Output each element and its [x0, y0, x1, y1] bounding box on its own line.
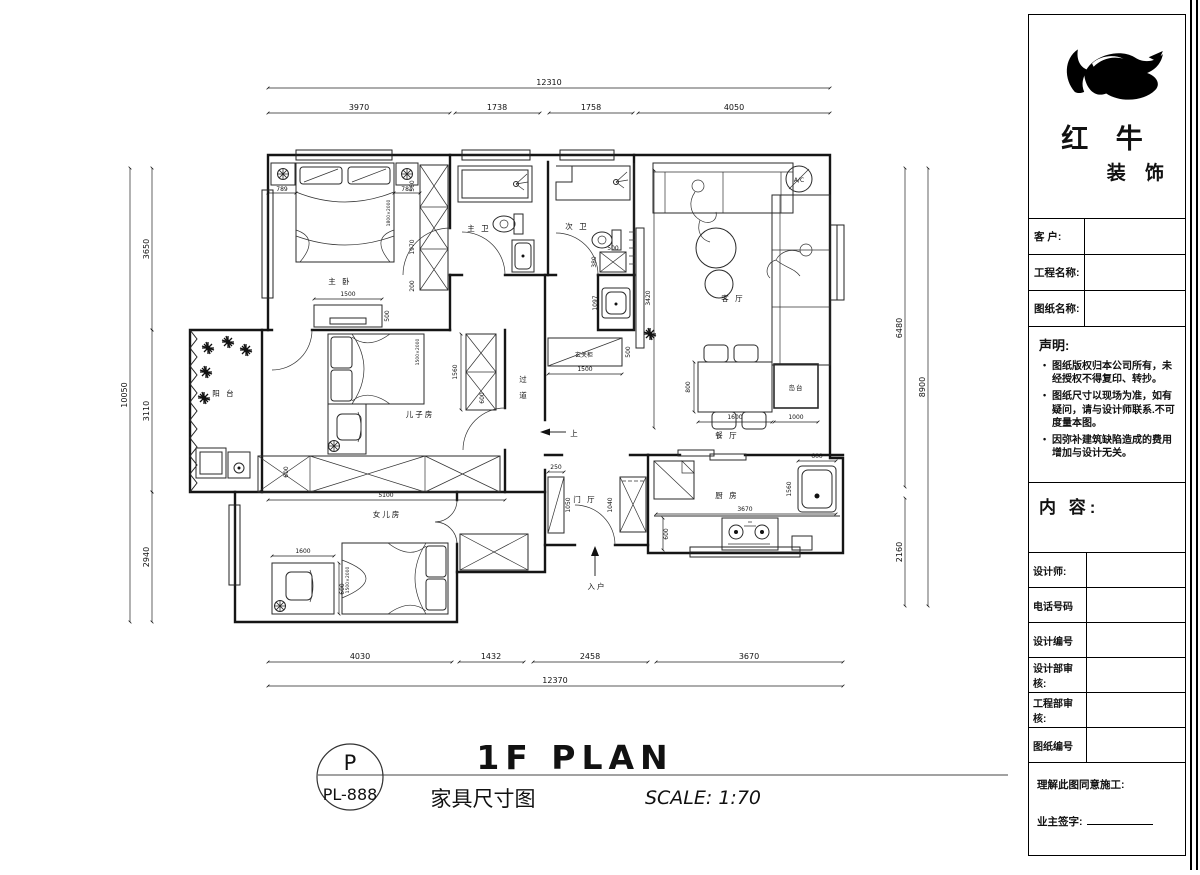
svg-text:1600: 1600: [295, 548, 310, 555]
entry-label: 入户: [588, 581, 607, 591]
svg-text:4050: 4050: [724, 103, 744, 112]
svg-text:1758: 1758: [581, 103, 601, 112]
field-designer: 设计师:: [1029, 553, 1185, 588]
svg-text:800: 800: [685, 381, 692, 393]
sheet-border-line: [1190, 0, 1192, 870]
field-engineering-review: 工程部审核:: [1029, 693, 1185, 728]
field-phone-value: [1087, 588, 1185, 622]
entry-cabinet-label: 玄关柜: [575, 351, 593, 359]
sheet-title: 1F PLAN: [476, 738, 673, 777]
master-bedroom: 1800×2000 主 卧: [271, 163, 448, 327]
statement-item: 图纸尺寸以现场为准，如有疑问，请与设计师联系.不可度量本图。: [1043, 390, 1179, 430]
sheet-title-bar: P PL-888 1F PLAN 家具尺寸图 SCALE: 1:70: [317, 738, 1008, 811]
content-label: 内 容:: [1039, 498, 1099, 517]
ac-symbol: A/C: [786, 166, 812, 192]
tv-unit: [636, 228, 644, 348]
island-label: 岛台: [789, 383, 804, 392]
room-label-master: 主 卧: [328, 276, 351, 286]
lamp-icon: [329, 441, 340, 452]
construction-consent-label: 理解此图同意施工:: [1037, 777, 1177, 792]
svg-text:500: 500: [625, 346, 632, 358]
svg-text:600: 600: [663, 528, 670, 540]
field-designer-value: [1087, 553, 1185, 587]
svg-text:1050: 1050: [565, 497, 572, 512]
svg-text:1432: 1432: [481, 652, 501, 661]
svg-text:600: 600: [283, 466, 290, 478]
plant-icon: [202, 342, 214, 354]
son-bed: [328, 334, 424, 404]
room-label-living: 客 厅: [721, 293, 744, 303]
sheet-border-line: [1196, 0, 1198, 870]
kitchen-sink: [798, 466, 836, 512]
living-room: A/C 客 厅: [634, 163, 830, 365]
field-design-review-value: [1087, 658, 1185, 692]
room-label-foyer: 门 厅: [573, 495, 596, 504]
plant-icon: [240, 344, 252, 356]
sheet-code-top: P: [344, 751, 357, 775]
balcony: 阳 台: [196, 336, 252, 478]
statement-item: 图纸版权归本公司所有，未经授权不得复印、转抄。: [1043, 360, 1179, 386]
svg-text:600: 600: [811, 453, 823, 460]
field-drawing-no-value: [1087, 728, 1185, 762]
svg-text:10050: 10050: [120, 382, 129, 407]
svg-text:1560: 1560: [786, 481, 793, 496]
field-engineering-review-value: [1087, 693, 1185, 727]
person-figure: [767, 244, 812, 278]
svg-text:3420: 3420: [645, 290, 652, 305]
svg-text:380: 380: [591, 256, 598, 268]
field-drawing-no: 图纸编号: [1029, 728, 1185, 763]
sheet-code-bottom: PL-888: [323, 785, 378, 804]
room-label-daughter: 女儿房: [373, 509, 402, 519]
svg-text:12370: 12370: [542, 676, 567, 685]
brand-area: 红 牛 装 饰: [1029, 15, 1185, 219]
svg-text:789: 789: [276, 186, 288, 193]
svg-text:600: 600: [479, 392, 486, 404]
field-customer-value: [1085, 219, 1185, 254]
svg-text:A/C: A/C: [794, 177, 804, 184]
content-box: 内 容:: [1029, 483, 1185, 553]
room-label-dining: 餐 厅: [715, 431, 738, 440]
floor-plan-area: 1800×2000 主 卧 主 卫 次 卫: [0, 0, 1030, 870]
room-label-kitchen: 厨 房: [715, 490, 738, 500]
owner-signature-label: 业主签字:: [1037, 814, 1177, 829]
sofa-side: [772, 195, 830, 365]
svg-text:1000: 1000: [788, 414, 803, 421]
field-drawing-name-value: [1085, 291, 1185, 326]
stove: [722, 518, 778, 550]
second-bath: 次 卫: [556, 166, 635, 272]
field-design-no-value: [1087, 623, 1185, 657]
svg-text:1600: 1600: [727, 414, 742, 421]
field-project-name: 工程名称:: [1029, 255, 1185, 291]
corridor-label: 道: [519, 390, 529, 400]
basin-nook: [602, 288, 630, 318]
foyer: 门 厅 入户: [548, 477, 646, 591]
svg-text:1500: 1500: [577, 366, 592, 373]
svg-text:2160: 2160: [895, 542, 904, 562]
brand-name-2: 装 饰: [1107, 158, 1171, 185]
master-bath: 主 卫: [458, 166, 534, 272]
svg-text:3670: 3670: [739, 652, 759, 661]
field-drawing-name: 图纸名称:: [1029, 291, 1185, 327]
svg-text:3110: 3110: [142, 401, 151, 421]
signature-line: [1087, 814, 1153, 825]
svg-text:500: 500: [384, 310, 391, 322]
statement-list: 图纸版权归本公司所有，未经授权不得复印、转抄。 图纸尺寸以现场为准，如有疑问，请…: [1039, 360, 1179, 460]
lamp-icon: [278, 169, 289, 180]
svg-text:1040: 1040: [607, 497, 614, 512]
floor-plan-svg: 1800×2000 主 卧 主 卫 次 卫: [0, 0, 1030, 870]
up-arrow: 上: [540, 429, 580, 439]
bed-size-label: 1500×2000: [415, 339, 421, 366]
master-bed: [296, 163, 394, 262]
corridor-label: 过: [519, 374, 529, 384]
lamp-icon: [402, 169, 413, 180]
svg-text:3650: 3650: [142, 239, 151, 259]
sheet-scale: SCALE: 1:70: [645, 787, 761, 809]
statement-item: 因弥补建筑缺陷造成的费用增加与设计无关。: [1043, 434, 1179, 460]
svg-text:1097: 1097: [592, 295, 599, 310]
svg-text:1560: 1560: [452, 364, 459, 379]
svg-text:3670: 3670: [737, 506, 752, 513]
title-block: 红 牛 装 饰 客 户: 工程名称: 图纸名称: 声明: 图纸版权归本公司所有，…: [1028, 14, 1186, 856]
svg-text:1970: 1970: [409, 239, 416, 254]
svg-text:上: 上: [570, 429, 580, 438]
bed-size-label: 1800×2000: [386, 200, 392, 227]
svg-text:2940: 2940: [142, 547, 151, 567]
svg-text:12310: 12310: [536, 78, 561, 87]
svg-text:2458: 2458: [580, 652, 600, 661]
svg-text:3970: 3970: [349, 103, 369, 112]
svg-text:1738: 1738: [487, 103, 507, 112]
svg-text:5100: 5100: [378, 492, 393, 499]
room-label-master-bath: 主 卫: [467, 223, 490, 233]
room-label-balcony: 阳 台: [212, 388, 235, 398]
field-project-name-value: [1085, 255, 1185, 290]
field-design-review: 设计部审核:: [1029, 658, 1185, 693]
plant-icon: [222, 336, 234, 348]
svg-text:8900: 8900: [918, 377, 927, 397]
svg-text:500: 500: [607, 245, 619, 252]
plant-icon: [198, 392, 210, 404]
low-cabinets: [258, 456, 500, 492]
svg-text:600: 600: [339, 583, 346, 595]
statement-title: 声明:: [1039, 335, 1179, 354]
room-label-second-bath: 次 卫: [565, 221, 588, 231]
field-customer: 客 户:: [1029, 219, 1185, 255]
svg-text:200: 200: [409, 280, 416, 292]
svg-text:1500: 1500: [340, 291, 355, 298]
statement-box: 声明: 图纸版权归本公司所有，未经授权不得复印、转抄。 图纸尺寸以现场为准，如有…: [1029, 327, 1185, 483]
svg-text:6480: 6480: [895, 318, 904, 338]
svg-text:250: 250: [550, 464, 562, 471]
daughter-room: 1500×2000 女儿房: [272, 509, 528, 614]
room-label-son: 儿子房: [406, 409, 435, 419]
svg-text:560: 560: [409, 180, 416, 192]
entry-arrow: 入户: [588, 546, 607, 591]
brand-name: 红 牛: [1061, 117, 1153, 156]
plant-icon: [200, 366, 212, 378]
field-phone: 电话号码: [1029, 588, 1185, 623]
corridor: 过 道 玄关柜 上: [519, 338, 622, 438]
coffee-table: [696, 228, 736, 268]
dining-table: [698, 362, 772, 412]
sheet-subtitle: 家具尺寸图: [431, 787, 536, 811]
dining: 岛台 餐 厅: [698, 345, 818, 440]
svg-text:4030: 4030: [350, 652, 370, 661]
windows: [190, 150, 844, 585]
son-room: 1500×2000 儿子房: [258, 334, 500, 492]
field-design-no: 设计编号: [1029, 623, 1185, 658]
drawing-sheet: { "sidebar": { "brand_1": "红 牛", "brand_…: [0, 0, 1200, 870]
lamp-icon: [275, 601, 286, 612]
signature-box: 理解此图同意施工: 业主签字:: [1029, 763, 1185, 855]
brand-logo: [1048, 31, 1166, 115]
